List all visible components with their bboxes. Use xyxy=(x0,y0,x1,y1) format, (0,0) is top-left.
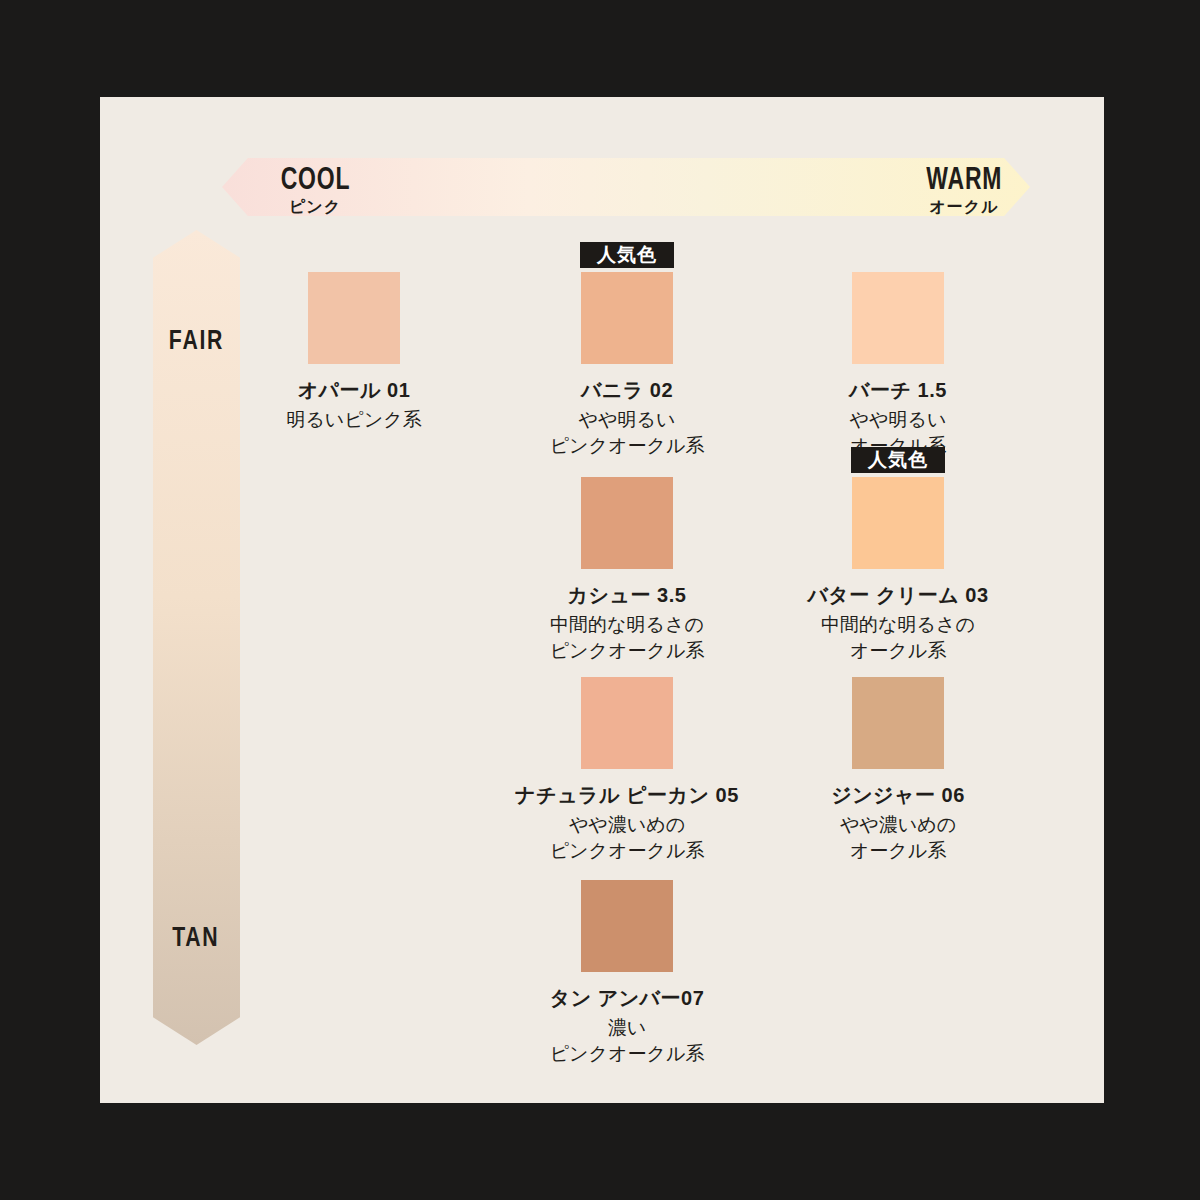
cool-sublabel: ピンク xyxy=(245,197,385,218)
shade-description: 中間的な明るさの ピンクオークル系 xyxy=(477,612,777,664)
shade-swatch xyxy=(581,477,673,569)
shade-description: 濃い ピンクオークル系 xyxy=(477,1015,777,1067)
shade-item-vanilla-02: 人気色 バニラ 02 やや明るい ピンクオークル系 xyxy=(477,272,777,459)
tan-label: TAN xyxy=(136,922,256,951)
shade-name: ナチュラル ピーカン 05 xyxy=(477,782,777,809)
warm-label: WARM xyxy=(926,161,1002,197)
shade-name: バーチ 1.5 xyxy=(748,377,1048,404)
shade-swatch xyxy=(581,880,673,972)
shade-item-butter-cream-03: 人気色 バター クリーム 03 中間的な明るさの オークル系 xyxy=(748,477,1048,664)
shade-swatch xyxy=(308,272,400,364)
shade-item-ginger-06: ジンジャー 06 やや濃いめの オークル系 xyxy=(748,677,1048,864)
shade-description: やや濃いめの オークル系 xyxy=(748,812,1048,864)
popular-color-badge: 人気色 xyxy=(851,447,945,473)
cool-axis-label: COOL ピンク xyxy=(245,163,385,218)
shade-name: バニラ 02 xyxy=(477,377,777,404)
shade-item-opal-01: オパール 01 明るいピンク系 xyxy=(204,272,504,433)
cool-label: COOL xyxy=(280,161,350,197)
shade-item-birch-1-5: バーチ 1.5 やや明るい オークル系 xyxy=(748,272,1048,459)
shade-name: カシュー 3.5 xyxy=(477,582,777,609)
warm-sublabel: オークル xyxy=(894,197,1034,218)
shade-item-tan-amber-07: タン アンバー07 濃い ピンクオークル系 xyxy=(477,880,777,1067)
shade-description: 明るいピンク系 xyxy=(204,407,504,433)
shade-description: やや濃いめの ピンクオークル系 xyxy=(477,812,777,864)
shade-chart-panel: COOL ピンク WARM オークル FAIR TAN オパール 01 明るいピ… xyxy=(100,97,1104,1103)
shade-name: オパール 01 xyxy=(204,377,504,404)
shade-swatch xyxy=(852,272,944,364)
shade-item-cashew-3-5: カシュー 3.5 中間的な明るさの ピンクオークル系 xyxy=(477,477,777,664)
shade-description: やや明るい ピンクオークル系 xyxy=(477,407,777,459)
shade-description: 中間的な明るさの オークル系 xyxy=(748,612,1048,664)
shade-name: ジンジャー 06 xyxy=(748,782,1048,809)
shade-swatch xyxy=(852,477,944,569)
shade-swatch xyxy=(581,677,673,769)
popular-color-badge: 人気色 xyxy=(580,242,674,268)
shade-item-natural-pecan-05: ナチュラル ピーカン 05 やや濃いめの ピンクオークル系 xyxy=(477,677,777,864)
warm-axis-label: WARM オークル xyxy=(894,163,1034,218)
shade-swatch xyxy=(581,272,673,364)
shade-name: タン アンバー07 xyxy=(477,985,777,1012)
shade-name: バター クリーム 03 xyxy=(748,582,1048,609)
shade-swatch xyxy=(852,677,944,769)
